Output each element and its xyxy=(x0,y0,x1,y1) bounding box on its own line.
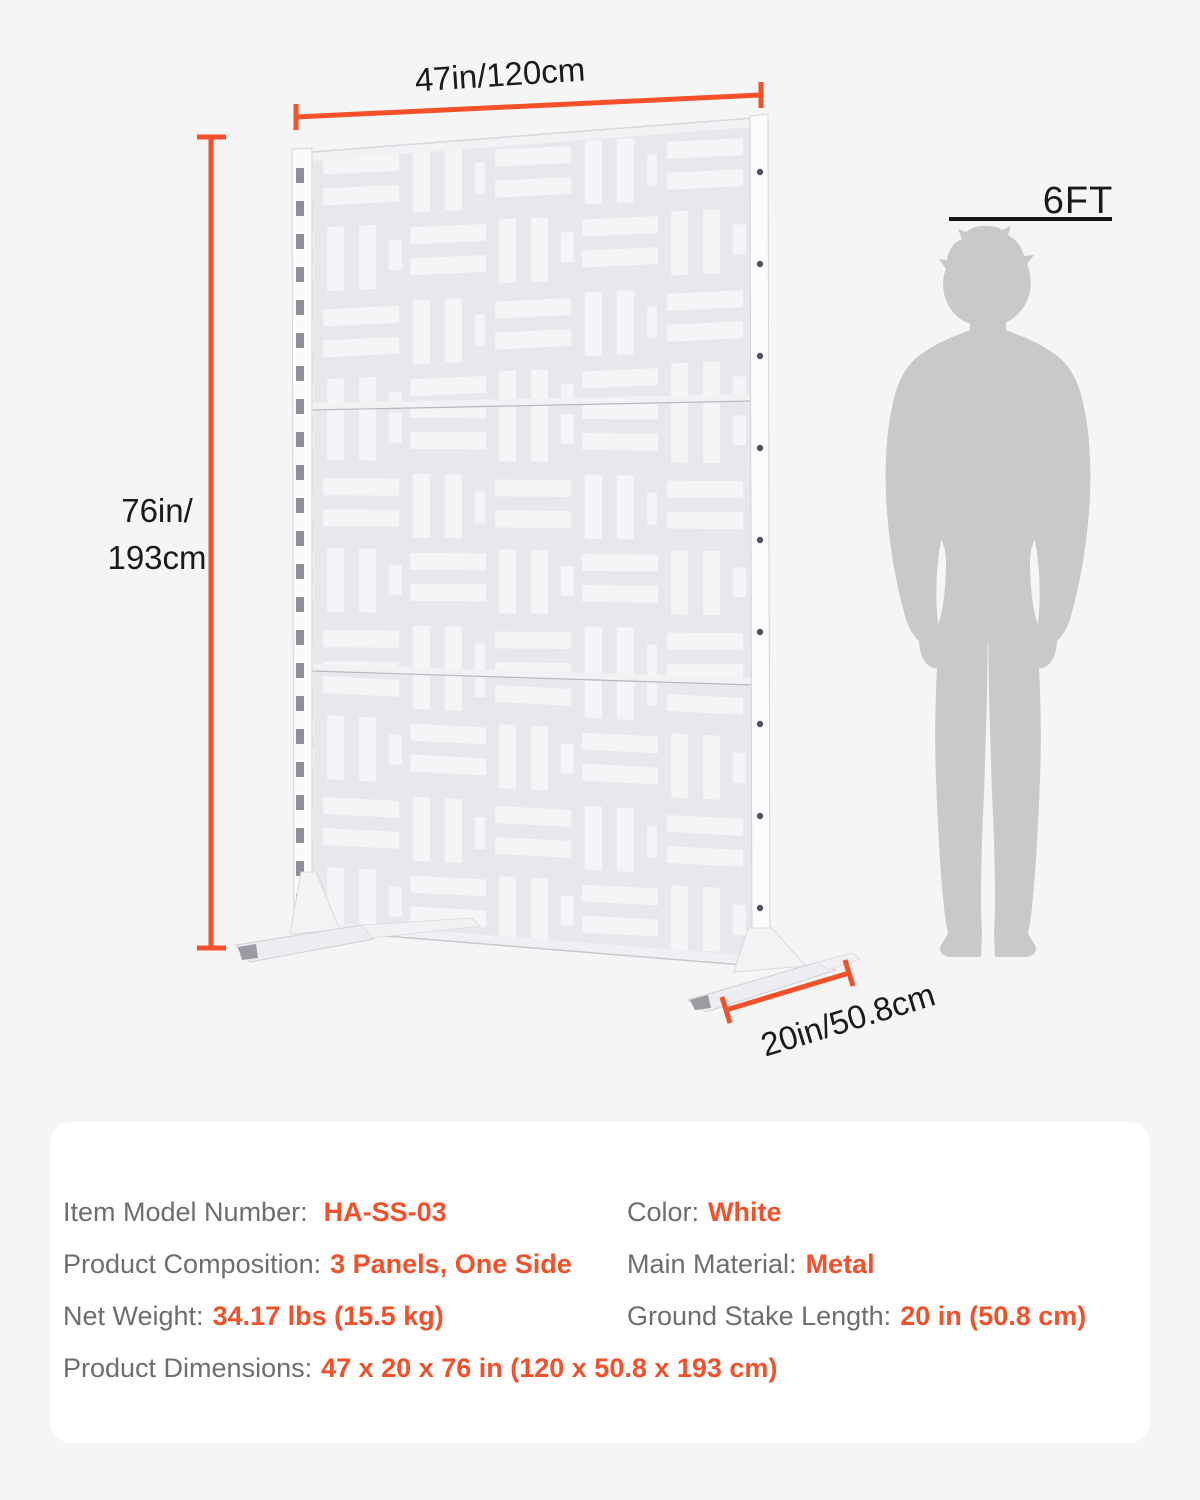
man-silhouette-icon xyxy=(886,226,1091,957)
panel-section-bottom xyxy=(312,669,755,966)
person-height-label: 6FT xyxy=(1038,180,1118,223)
right-foot-opening xyxy=(690,995,711,1010)
spec-item-model-number: Item Model Number: HA-SS-03 xyxy=(63,1186,627,1238)
right-foot-back xyxy=(818,953,860,970)
product-dimension-infographic: 47in/120cm 76in/ 193cm 20in/50.8cm 6FT I… xyxy=(0,0,1200,1500)
panel-section-top xyxy=(312,118,753,408)
spec-color: Color: White xyxy=(627,1186,1150,1238)
height-dimension-line1: 76in/ xyxy=(96,487,218,534)
spec-ground-stake-length: Ground Stake Length: 20 in (50.8 cm) xyxy=(627,1290,1150,1342)
slot-rail-slots xyxy=(296,168,304,909)
spec-product-composition: Product Composition: 3 Panels, One Side xyxy=(63,1238,627,1290)
privacy-screen xyxy=(236,114,860,1012)
panel-section-middle xyxy=(312,399,753,683)
height-dimension-line2: 193cm xyxy=(96,534,218,581)
height-dimension-label: 76in/ 193cm xyxy=(96,487,218,581)
spec-grid: Item Model Number: HA-SS-03 Color: White… xyxy=(50,1122,1150,1394)
spec-net-weight: Net Weight: 34.17 lbs (15.5 kg) xyxy=(63,1290,627,1342)
spec-product-dimensions: Product Dimensions: 47 x 20 x 76 in (120… xyxy=(63,1342,1150,1394)
spec-card: Item Model Number: HA-SS-03 Color: White… xyxy=(50,1122,1150,1443)
spec-main-material: Main Material: Metal xyxy=(627,1238,1150,1290)
